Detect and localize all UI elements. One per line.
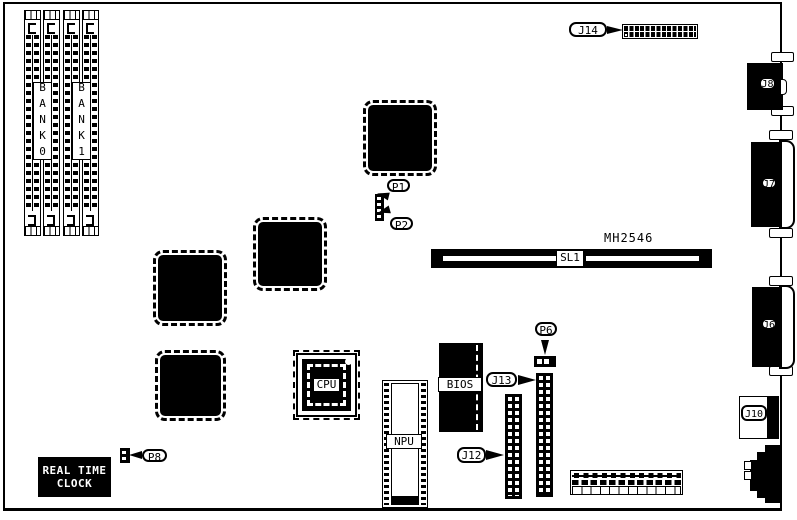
bank0-label: BANK0	[33, 82, 52, 160]
qfp-chip-1	[368, 105, 432, 171]
din-step	[765, 496, 781, 503]
cpu-pin1-notch	[345, 358, 352, 365]
p8-pads	[122, 451, 126, 460]
j14-callout: J14	[569, 22, 607, 37]
bottom-connector-contact-row	[572, 480, 681, 485]
p8-callout: P8	[142, 449, 167, 462]
p6-pad	[537, 359, 542, 364]
cpu-label: CPU	[313, 378, 340, 392]
simm-contact-row	[64, 226, 79, 235]
j7-mount-tab-bottom	[769, 228, 793, 238]
j12-header	[505, 394, 522, 499]
simm-latch	[83, 211, 98, 226]
simm-latch	[64, 211, 79, 226]
simm-contact-row	[83, 11, 98, 20]
simm-latch	[25, 20, 40, 35]
qfp-chip-3	[158, 255, 222, 321]
j14-pin1-marker	[624, 33, 628, 37]
simm-contact-row	[44, 11, 59, 20]
j12-callout: J12	[457, 447, 486, 463]
sl1-stripe-left	[443, 256, 556, 261]
j6-label: J6	[761, 318, 777, 330]
p2-callout: P2	[390, 217, 413, 230]
j14-pointer	[607, 26, 623, 34]
bottom-connector-pin-row	[572, 472, 681, 479]
p6-callout: P6	[535, 322, 557, 336]
simm-latch	[25, 211, 40, 226]
rtc-chip: REAL TIME CLOCK	[38, 457, 111, 497]
j10-label: J10	[741, 405, 767, 421]
rtc-label-line2: CLOCK	[38, 477, 111, 490]
din-body	[750, 460, 781, 491]
simm-contact-row	[64, 11, 79, 20]
p6-pad	[544, 359, 549, 364]
j7-mount-tab-top	[769, 130, 793, 140]
j8-mount-tab-top	[771, 52, 794, 62]
j12-pointer	[486, 450, 504, 460]
simm-contact-row	[83, 226, 98, 235]
bottom-edge-connector	[570, 470, 683, 495]
simm-latch	[44, 211, 59, 226]
j8-port-bump	[780, 79, 787, 95]
sl1-slot: SL1	[431, 249, 712, 268]
bottom-connector-socket-row	[572, 486, 681, 495]
p6-pointer	[541, 340, 549, 355]
sl1-stripe-right	[586, 256, 699, 261]
p1-callout: P1	[387, 179, 410, 192]
simm-latch	[64, 20, 79, 35]
npu-label: NPU	[386, 434, 422, 449]
qfp-chip-4	[160, 355, 221, 416]
j13-callout: J13	[486, 372, 517, 387]
sl1-label: SL1	[556, 250, 584, 267]
j14-pin-row	[624, 32, 696, 37]
p8-pointer	[129, 451, 142, 459]
part-number-text: MH2546	[604, 231, 653, 245]
din-pin-slot	[744, 461, 752, 470]
simm-latch	[44, 20, 59, 35]
din-pin-slot	[744, 471, 752, 480]
j8-label: J8	[759, 77, 776, 90]
simm-contact-row	[44, 226, 59, 235]
simm-latch	[83, 20, 98, 35]
j7-label: J7	[761, 177, 777, 189]
motherboard-diagram: BANK0 BANK1 J14 P1 P2 MH2546 SL1 CPU BIO…	[0, 0, 797, 520]
p6-jumper	[534, 356, 556, 367]
j13-header	[536, 373, 553, 497]
bank1-label: BANK1	[72, 82, 91, 160]
j14-header	[622, 24, 698, 39]
keyboard-din-connector	[744, 445, 782, 503]
rtc-label-line1: REAL TIME	[38, 464, 111, 477]
simm-contact-row	[25, 226, 40, 235]
simm-contact-row	[25, 11, 40, 20]
cpu-socket: CPU	[296, 353, 357, 417]
j13-pointer	[518, 375, 536, 385]
j14-pin-row	[624, 26, 696, 31]
qfp-chip-2	[258, 222, 322, 286]
j10-port-bar	[767, 397, 778, 438]
bios-label: BIOS	[438, 377, 482, 392]
